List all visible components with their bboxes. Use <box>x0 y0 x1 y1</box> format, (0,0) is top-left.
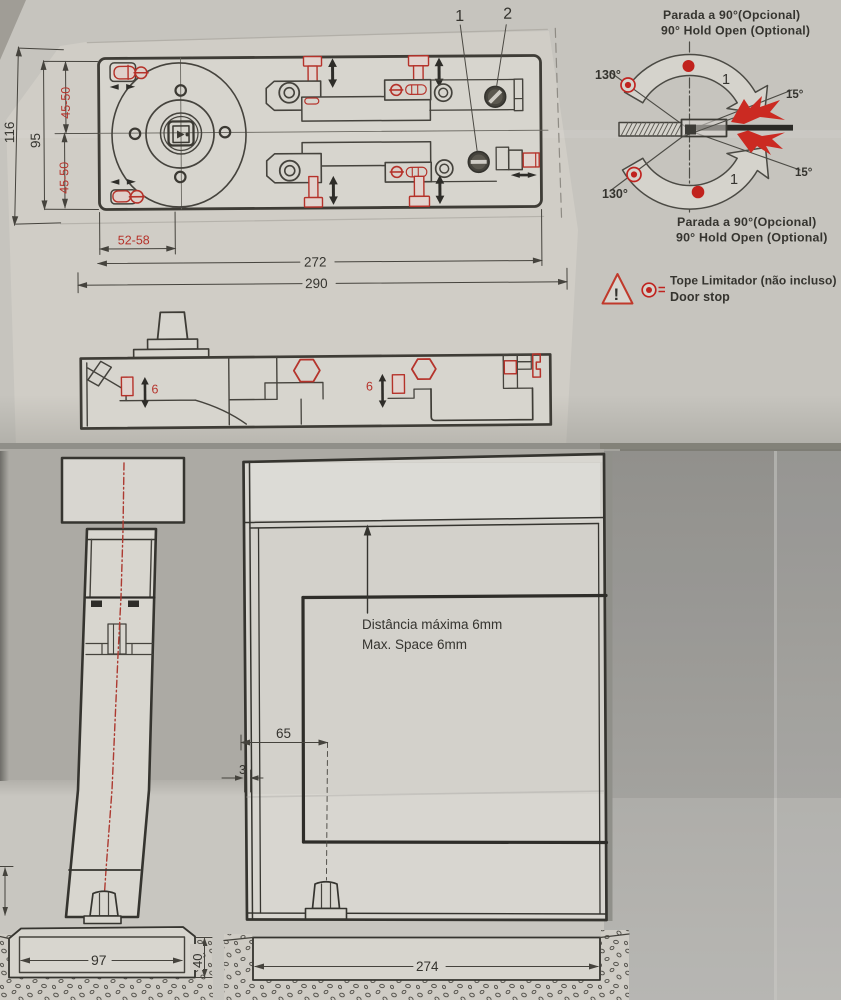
svg-text:52-58: 52-58 <box>118 233 150 247</box>
svg-text:45-50: 45-50 <box>59 87 73 119</box>
svg-text:90° Hold Open (Optional): 90° Hold Open (Optional) <box>676 231 828 245</box>
svg-text:Tope Limitador (não incluso): Tope Limitador (não incluso) <box>670 274 837 288</box>
svg-text:6: 6 <box>366 379 373 393</box>
svg-text:40: 40 <box>190 954 205 968</box>
svg-text:1: 1 <box>722 72 730 88</box>
svg-text:97: 97 <box>91 952 107 968</box>
svg-text:15°: 15° <box>786 89 804 101</box>
svg-text:45-50: 45-50 <box>57 162 71 194</box>
svg-text:Parada a 90°(Opcional): Parada a 90°(Opcional) <box>677 215 817 229</box>
svg-text:Parada a 90°(Opcional): Parada a 90°(Opcional) <box>663 8 800 22</box>
svg-text:95: 95 <box>28 133 43 148</box>
svg-text:Door stop: Door stop <box>670 290 730 304</box>
svg-text:272: 272 <box>304 254 327 269</box>
svg-text:!: ! <box>614 285 620 304</box>
svg-text:6: 6 <box>151 382 158 396</box>
svg-text:15°: 15° <box>795 167 813 179</box>
svg-text:274: 274 <box>416 959 439 974</box>
svg-text:2: 2 <box>503 6 512 23</box>
svg-text:130°: 130° <box>595 68 621 82</box>
svg-text:Max. Space 6mm: Max. Space 6mm <box>362 637 467 652</box>
svg-text:65: 65 <box>276 726 291 741</box>
svg-text:Distância máxima 6mm: Distância máxima 6mm <box>362 617 502 632</box>
svg-text:130°: 130° <box>602 187 628 201</box>
svg-text:290: 290 <box>305 276 328 291</box>
svg-text:1: 1 <box>455 8 464 25</box>
svg-text:1: 1 <box>730 172 738 188</box>
svg-text:116: 116 <box>2 122 17 144</box>
svg-text:90° Hold Open (Optional): 90° Hold Open (Optional) <box>661 24 810 38</box>
